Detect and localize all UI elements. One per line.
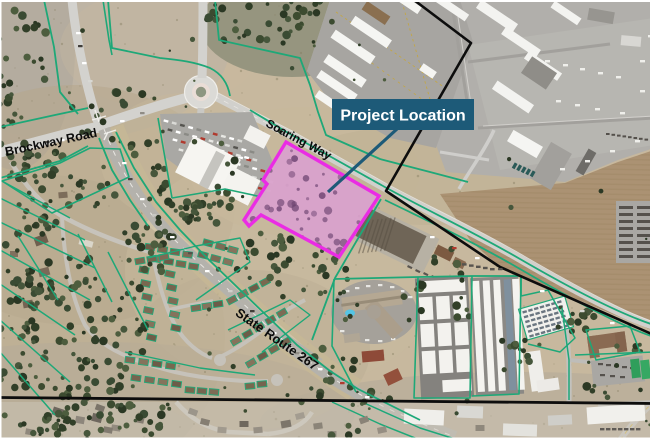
svg-text:Project Location: Project Location bbox=[340, 108, 465, 125]
